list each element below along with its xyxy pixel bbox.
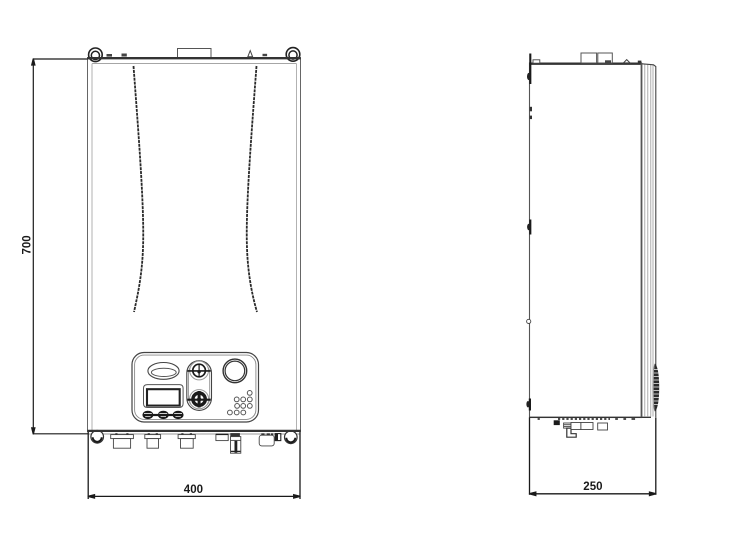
svg-text:250: 250 bbox=[583, 481, 602, 493]
svg-text:400: 400 bbox=[184, 484, 203, 496]
svg-text:700: 700 bbox=[22, 235, 34, 254]
